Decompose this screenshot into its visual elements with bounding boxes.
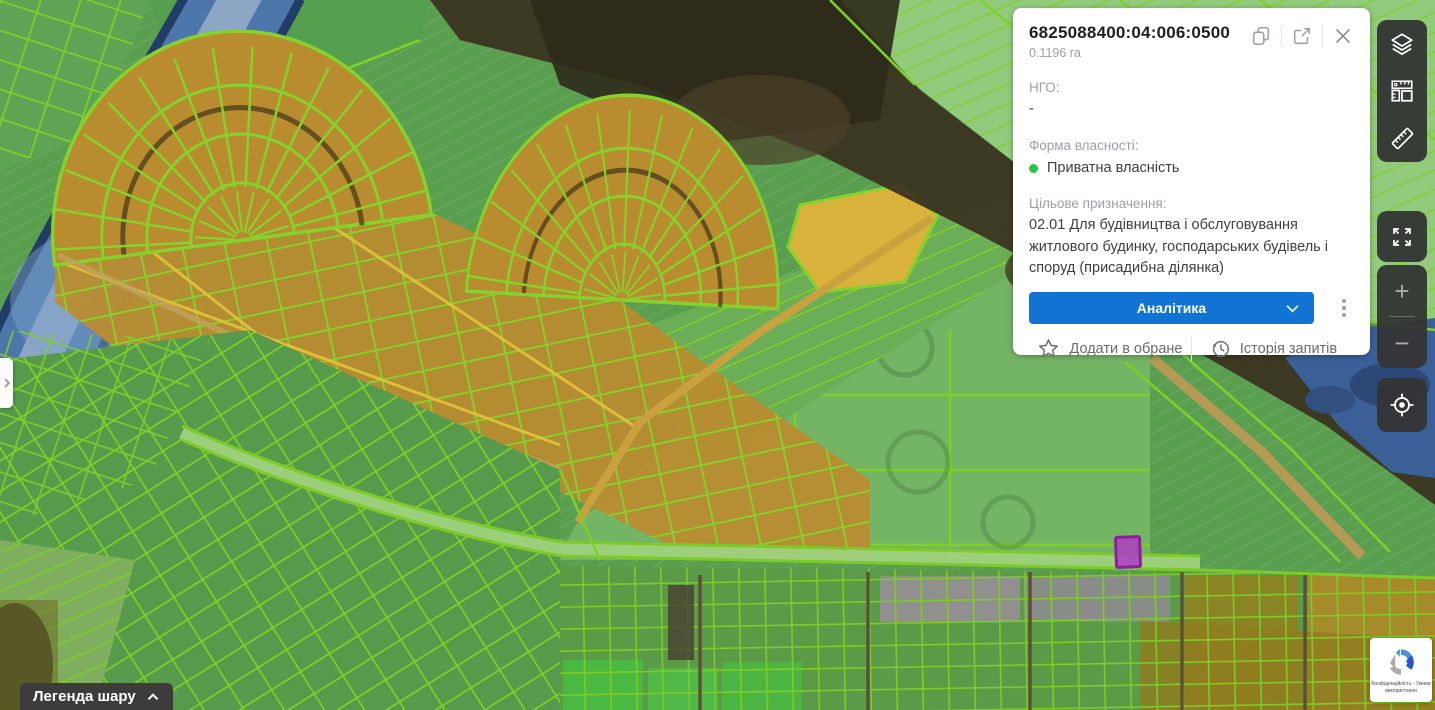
legend-label: Легенда шару [33, 688, 136, 705]
ownership-status-dot [1029, 164, 1038, 173]
zoom-out-button[interactable]: − [1377, 317, 1427, 368]
ownership-label: Форма власності: [1029, 137, 1354, 154]
ngo-label: НГО: [1029, 79, 1354, 96]
close-icon[interactable] [1332, 25, 1354, 47]
ruler-tool-button[interactable] [1377, 115, 1427, 161]
analytics-row: Аналітика [1029, 292, 1354, 324]
measure-area-icon [1389, 78, 1415, 104]
chevron-right-icon [3, 377, 11, 389]
selected-parcel[interactable] [1115, 537, 1140, 568]
layers-icon [1389, 31, 1415, 57]
south-parcel-strip [560, 566, 1435, 710]
panel-actions: Додати в обране Історія запитів [1029, 335, 1354, 363]
ownership-value: Приватна власність [1047, 160, 1179, 176]
purpose-label: Цільове призначення: [1029, 195, 1354, 212]
purpose-value: 02.01 Для будівництва і обслуговування ж… [1029, 215, 1354, 280]
chevron-down-icon [1285, 304, 1300, 313]
panel-header: 6825088400:04:006:0500 0.1196 га [1029, 22, 1354, 60]
divider [1281, 26, 1282, 46]
parcel-info-panel: 6825088400:04:006:0500 0.1196 га Н [1013, 8, 1370, 355]
star-icon [1037, 337, 1060, 360]
map-tools-group [1377, 20, 1427, 162]
history-label: Історія запитів [1240, 341, 1337, 357]
copy-icon[interactable] [1250, 25, 1272, 47]
zoom-in-button[interactable]: + [1377, 265, 1427, 316]
measure-area-tool-button[interactable] [1377, 68, 1427, 114]
zoom-out-icon: − [1394, 330, 1409, 356]
add-to-favorites-button[interactable]: Додати в обране [1029, 337, 1191, 360]
analytics-button[interactable]: Аналітика [1029, 292, 1314, 324]
open-in-new-icon[interactable] [1291, 25, 1313, 47]
layers-tool-button[interactable] [1377, 21, 1427, 67]
request-history-button[interactable]: Історія запитів [1192, 338, 1354, 360]
drawer-toggle-button[interactable] [0, 358, 13, 408]
fullscreen-button[interactable] [1377, 211, 1427, 262]
parcel-area: 0.1196 га [1029, 46, 1230, 60]
chevron-up-icon [146, 692, 160, 702]
locate-icon [1389, 392, 1415, 418]
zoom-control: + − [1377, 265, 1427, 368]
fullscreen-icon [1390, 225, 1414, 249]
ruler-icon [1389, 125, 1416, 152]
panel-header-icons [1250, 25, 1354, 47]
locate-me-button[interactable] [1377, 378, 1427, 432]
analytics-button-label: Аналітика [1137, 300, 1206, 316]
title-block: 6825088400:04:006:0500 0.1196 га [1029, 22, 1230, 60]
cadastral-map-app: 2025 Google [0, 0, 1435, 710]
recaptcha-badge[interactable]: Конфіденційність - Умови використання [1370, 638, 1432, 702]
history-icon [1209, 338, 1231, 360]
ownership-row: Приватна власність [1029, 160, 1354, 176]
kebab-menu-icon[interactable] [1340, 297, 1348, 319]
recaptcha-terms: Конфіденційність - Умови використання [1371, 681, 1430, 696]
parcel-id: 6825088400:04:006:0500 [1029, 22, 1230, 44]
recaptcha-icon [1384, 645, 1418, 679]
layer-legend-button[interactable]: Легенда шару [20, 683, 173, 710]
zoom-in-icon: + [1394, 278, 1409, 304]
divider [1322, 26, 1323, 46]
ngo-value: - [1029, 100, 1354, 118]
favorite-label: Додати в обране [1069, 341, 1182, 357]
